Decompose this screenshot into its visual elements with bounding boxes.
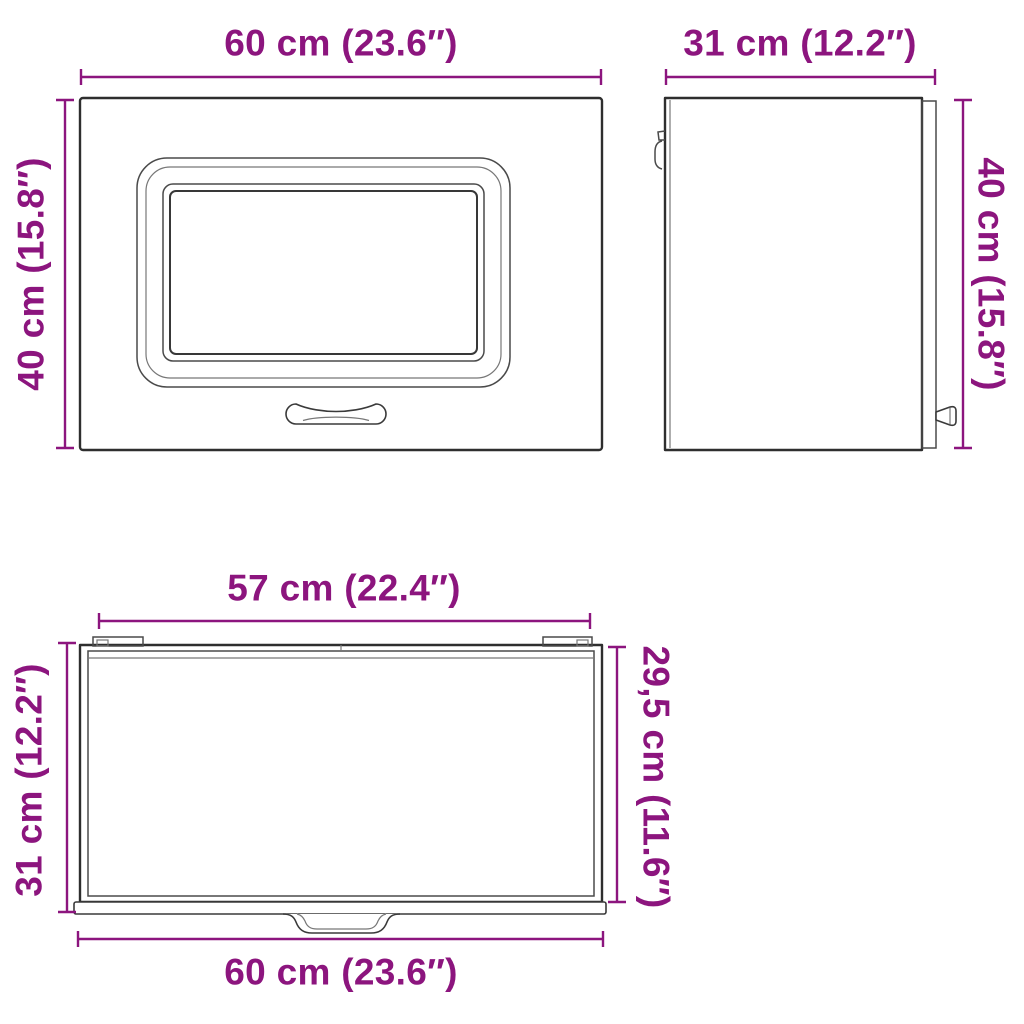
top-width-label: 60 cm (23.6″): [224, 954, 457, 991]
top-view: [74, 637, 606, 933]
front-height-dimension-line: [56, 100, 74, 448]
top-depth-label: 31 cm (12.2″): [11, 663, 48, 896]
top-inner-width-label: 57 cm (22.4″): [227, 570, 460, 607]
side-depth-label: 31 cm (12.2″): [683, 25, 916, 62]
top-inner-width-dimension-line: [99, 613, 590, 629]
top-inner-depth-dimension-line: [608, 647, 626, 902]
side-door-handle: [936, 407, 956, 426]
side-mount-bracket: [655, 131, 665, 169]
front-cabinet-body: [80, 98, 602, 450]
side-height-dimension-line: [954, 100, 972, 448]
top-inner-depth-label: 29,5 cm (11.6″): [638, 646, 675, 909]
side-depth-dimension-line: [666, 69, 935, 85]
front-height-label: 40 cm (15.8″): [13, 157, 50, 390]
top-depth-dimension-line: [58, 643, 76, 912]
top-cabinet-body: [80, 645, 602, 902]
top-door-handle: [283, 914, 400, 933]
side-height-label: 40 cm (15.8″): [973, 157, 1010, 390]
top-door-edge: [74, 902, 606, 914]
front-width-label: 60 cm (23.6″): [224, 25, 457, 62]
cabinet-dimension-diagram: [0, 0, 1024, 1024]
front-width-dimension-line: [81, 69, 601, 85]
side-view: [655, 98, 956, 450]
side-door-panel: [922, 101, 936, 448]
front-view: [80, 98, 602, 450]
side-cabinet-body: [665, 98, 922, 450]
